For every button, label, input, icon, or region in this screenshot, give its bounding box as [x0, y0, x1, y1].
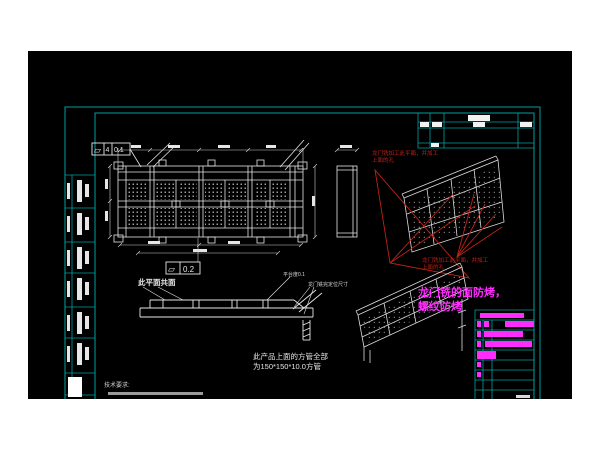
redacted-text-bar — [480, 313, 524, 318]
redacted-text-bar — [505, 321, 534, 327]
redacted-text-bar — [67, 315, 70, 331]
flatness-symbol: ⏥ — [94, 145, 101, 155]
redacted-text-bar — [67, 281, 70, 297]
front-view-mesh-panels — [128, 181, 288, 227]
header-table — [418, 113, 534, 148]
gantry-mill-dim-note: 龙门铣完定位尺寸 — [308, 281, 348, 288]
title-block — [475, 310, 534, 399]
isometric-view-bottom — [356, 263, 468, 363]
tech-req-title: 技术要求: — [104, 381, 130, 389]
side-view — [337, 166, 357, 237]
redacted-text-bar — [477, 362, 481, 367]
redacted-text-bar — [477, 372, 481, 377]
redacted-text-bar — [77, 343, 82, 365]
redacted-text-bar — [85, 316, 89, 329]
cad-application-screenshot: ⏥ 4 0.1 ⏥ 0.2 — [0, 0, 600, 450]
redacted-text-bar — [85, 184, 89, 197]
header-table-redacted-text — [420, 115, 532, 147]
dimension-lines — [108, 148, 359, 255]
gdt-frame-top: ⏥ 4 0.1 — [92, 143, 130, 155]
red-note-top-line1: 龙门铣加工此平面，并加工 — [372, 149, 439, 157]
coplanar-note: 此平面共面 — [138, 277, 176, 287]
bom-strip-redacted-text — [67, 180, 89, 397]
redacted-text-bar — [477, 321, 481, 327]
isometric-view-top — [402, 156, 504, 252]
title-block-redacted-entries — [477, 313, 534, 377]
redacted-text-bar — [77, 180, 82, 202]
product-note-line2: 为150*150*10.0方管 — [253, 361, 321, 371]
gdt-value-top: 0.1 — [114, 147, 124, 154]
redacted-text-bar — [484, 321, 489, 327]
gdt-value-bottom: 0.2 — [183, 265, 195, 274]
redacted-text-bar — [67, 183, 70, 199]
redacted-text-bar — [85, 347, 89, 360]
tech-req-redacted-line — [108, 392, 203, 395]
redacted-text-bar — [77, 312, 82, 334]
redacted-text-bar — [77, 278, 82, 300]
magenta-note-line2: 螺纹防烤 — [418, 299, 462, 313]
flatness-symbol: ⏥ — [168, 264, 175, 274]
gdt-datum: 4 — [106, 147, 110, 154]
redacted-text-bar — [77, 247, 82, 269]
cad-drawing: ⏥ 4 0.1 ⏥ 0.2 — [28, 51, 572, 399]
red-note-bottom-line1: 龙门铣加工此平面，并加工 — [422, 256, 489, 264]
redacted-text-bar — [85, 217, 89, 230]
redacted-text-bar — [477, 351, 496, 359]
redacted-text-bar — [485, 341, 532, 347]
gdt-frame-bottom: ⏥ 0.2 — [166, 238, 200, 274]
product-note-line1: 此产品上面的方管全部 — [253, 351, 328, 361]
red-note-bottom-line2: 上面的孔 — [422, 263, 445, 271]
redacted-text-bar — [477, 331, 481, 337]
redacted-text-bar — [67, 346, 70, 362]
redacted-text-bar — [85, 251, 89, 264]
platform-flatness-note: 平台度0.1 — [283, 271, 305, 278]
sheet-number-redacted — [516, 395, 530, 398]
redacted-text-bar — [85, 282, 89, 295]
magenta-note-line1: 龙门铣的面防烤， — [417, 285, 506, 299]
red-note-top-line2: 上面的孔 — [372, 156, 395, 164]
redacted-text-bar — [77, 213, 82, 235]
redacted-text-bar — [477, 341, 481, 347]
redacted-text-bar — [67, 250, 70, 266]
cad-black-canvas: ⏥ 4 0.1 ⏥ 0.2 — [28, 51, 572, 399]
redacted-text-bar — [67, 216, 70, 232]
redacted-text-bar — [68, 377, 82, 397]
redacted-text-bar — [484, 331, 523, 337]
